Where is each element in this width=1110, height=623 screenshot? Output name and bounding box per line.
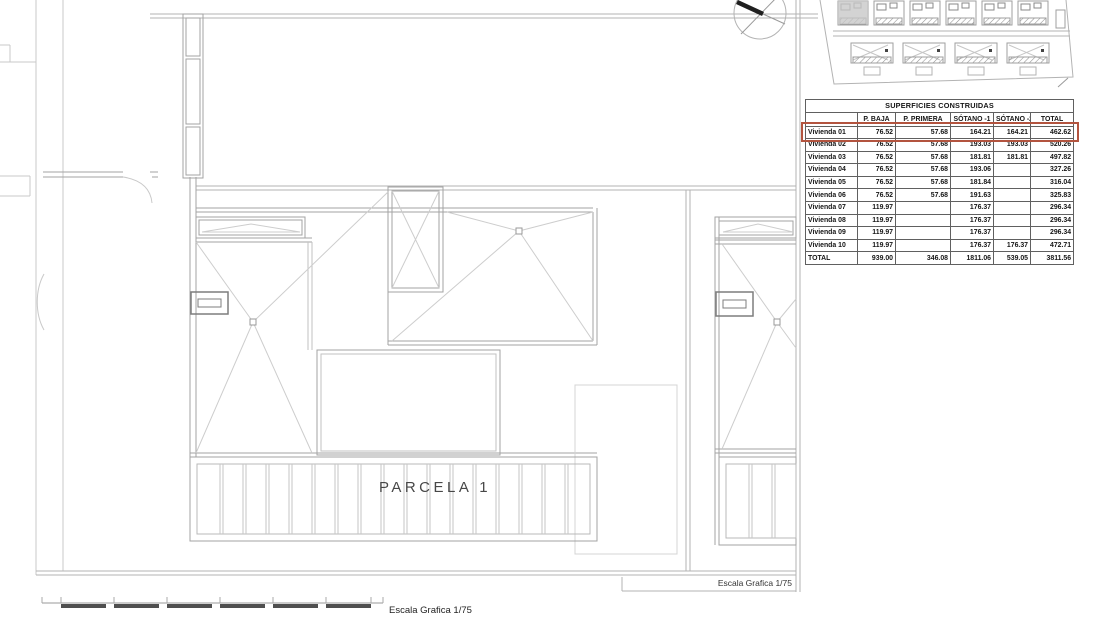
row-label: Vivienda 01: [806, 126, 858, 139]
value-cell: [896, 227, 951, 240]
value-cell: 193.03: [994, 139, 1031, 152]
value-cell: 57.68: [896, 164, 951, 177]
value-cell: 191.63: [951, 189, 994, 202]
value-cell: 181.81: [994, 151, 1031, 164]
value-cell: 497.82: [1031, 151, 1074, 164]
north-arrow-icon: [734, 0, 786, 39]
table-row: Vivienda 0576.5257.68181.84316.04: [806, 176, 1074, 189]
value-cell: 76.52: [858, 126, 896, 139]
value-cell: 57.68: [896, 139, 951, 152]
fence-wall: [43, 14, 203, 178]
value-cell: 316.04: [1031, 176, 1074, 189]
roof-apex-right: [516, 228, 522, 234]
row-label: Vivienda 05: [806, 176, 858, 189]
value-cell: 176.37: [951, 227, 994, 240]
table-row: Vivienda 08119.97176.37296.34: [806, 214, 1074, 227]
value-cell: [994, 227, 1031, 240]
value-cell: 176.37: [951, 214, 994, 227]
main-house-terrace: [190, 292, 677, 554]
value-cell: 462.62: [1031, 126, 1074, 139]
value-cell: 181.81: [951, 151, 994, 164]
value-cell: 57.68: [896, 151, 951, 164]
row-label: Vivienda 04: [806, 164, 858, 177]
table-row: Vivienda 0676.5257.68191.63325.83: [806, 189, 1074, 202]
value-cell: 181.84: [951, 176, 994, 189]
value-cell: 57.68: [896, 126, 951, 139]
value-cell: [896, 214, 951, 227]
table-row: Vivienda 0176.5257.68164.21164.21462.62: [806, 126, 1074, 139]
table-row: Vivienda 0276.5257.68193.03193.03520.26: [806, 139, 1074, 152]
row-label: Vivienda 08: [806, 214, 858, 227]
value-cell: 76.52: [858, 139, 896, 152]
table-row: Vivienda 10119.97176.37176.37472.71: [806, 239, 1074, 252]
surfaces-table-wrap: SUPERFICIES CONSTRUIDAS P. BAJAP. PRIMER…: [805, 99, 1073, 265]
value-cell: 119.97: [858, 214, 896, 227]
value-cell: 76.52: [858, 151, 896, 164]
table-title: SUPERFICIES CONSTRUIDAS: [806, 100, 1074, 113]
highlighted-unit-overlay: [838, 1, 868, 24]
row-label: Vivienda 10: [806, 239, 858, 252]
parcel-label: PARCELA 1: [335, 479, 535, 496]
value-cell: 119.97: [858, 202, 896, 215]
scale-bar: [42, 597, 383, 608]
value-cell: 176.37: [994, 239, 1031, 252]
value-cell: 296.34: [1031, 214, 1074, 227]
value-cell: 119.97: [858, 239, 896, 252]
column-header: TOTAL: [1031, 113, 1074, 127]
value-cell: 57.68: [896, 189, 951, 202]
value-cell: [896, 202, 951, 215]
value-cell: [994, 164, 1031, 177]
value-cell: 346.08: [896, 252, 951, 265]
value-cell: [896, 239, 951, 252]
column-header: [806, 113, 858, 127]
table-row: Vivienda 09119.97176.37296.34: [806, 227, 1074, 240]
value-cell: 3811.56: [1031, 252, 1074, 265]
frame-scale-label: Escala Grafica 1/75: [640, 578, 792, 588]
floor-plan-canvas: [0, 0, 1110, 623]
table-row: Vivienda 0476.5257.68193.06327.26: [806, 164, 1074, 177]
table-row: Vivienda 0376.5257.68181.81181.81497.82: [806, 151, 1074, 164]
main-house-walls: [190, 177, 597, 457]
value-cell: 325.83: [1031, 189, 1074, 202]
bar-scale-label: Escala Grafica 1/75: [389, 605, 472, 616]
value-cell: 472.71: [1031, 239, 1074, 252]
table-title-row: SUPERFICIES CONSTRUIDAS: [806, 100, 1074, 113]
value-cell: 119.97: [858, 227, 896, 240]
table-total-row: TOTAL939.00346.081811.06539.053811.56: [806, 252, 1074, 265]
row-label: TOTAL: [806, 252, 858, 265]
table-header-row: P. BAJAP. PRIMERASÓTANO -1SÓTANO -2TOTAL: [806, 113, 1074, 127]
row-label: Vivienda 07: [806, 202, 858, 215]
value-cell: [994, 214, 1031, 227]
value-cell: 539.05: [994, 252, 1031, 265]
site-plan-overview: [820, 0, 1073, 87]
value-cell: [994, 202, 1031, 215]
value-cell: 939.00: [858, 252, 896, 265]
plot-boundary-lines: [0, 0, 152, 575]
roof-apex-left: [250, 319, 256, 325]
value-cell: 164.21: [951, 126, 994, 139]
row-label: Vivienda 02: [806, 139, 858, 152]
value-cell: [994, 176, 1031, 189]
value-cell: 296.34: [1031, 202, 1074, 215]
surfaces-table: SUPERFICIES CONSTRUIDAS P. BAJAP. PRIMER…: [805, 99, 1074, 265]
value-cell: 76.52: [858, 164, 896, 177]
value-cell: 296.34: [1031, 227, 1074, 240]
column-header: SÓTANO -2: [994, 113, 1031, 127]
column-header: SÓTANO -1: [951, 113, 994, 127]
value-cell: 57.68: [896, 176, 951, 189]
value-cell: 1811.06: [951, 252, 994, 265]
neighbor-house: [715, 217, 796, 545]
value-cell: 76.52: [858, 176, 896, 189]
row-label: Vivienda 03: [806, 151, 858, 164]
value-cell: 176.37: [951, 239, 994, 252]
drawing-sheet: PARCELA 1 Escala Grafica 1/75 Escala Gra…: [0, 0, 1110, 623]
table-row: Vivienda 07119.97176.37296.34: [806, 202, 1074, 215]
column-header: P. BAJA: [858, 113, 896, 127]
value-cell: 164.21: [994, 126, 1031, 139]
value-cell: 76.52: [858, 189, 896, 202]
value-cell: 193.03: [951, 139, 994, 152]
value-cell: [994, 189, 1031, 202]
value-cell: 176.37: [951, 202, 994, 215]
row-label: Vivienda 06: [806, 189, 858, 202]
column-header: P. PRIMERA: [896, 113, 951, 127]
value-cell: 193.06: [951, 164, 994, 177]
value-cell: 327.26: [1031, 164, 1074, 177]
value-cell: 520.26: [1031, 139, 1074, 152]
row-label: Vivienda 09: [806, 227, 858, 240]
